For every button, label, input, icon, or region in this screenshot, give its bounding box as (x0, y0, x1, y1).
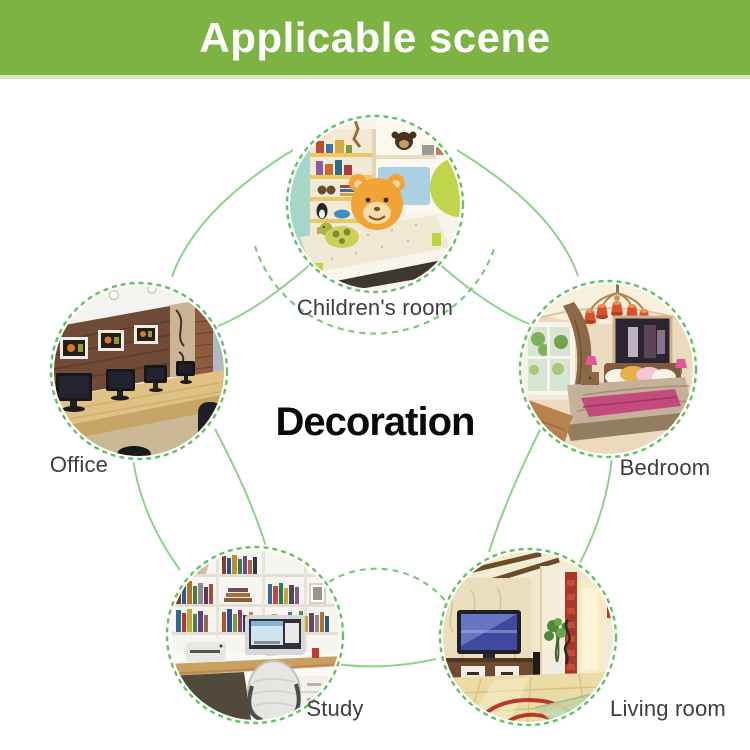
bedroom-illustration (517, 278, 699, 460)
office-illustration (48, 280, 230, 462)
children-room-photo (284, 113, 466, 295)
center-title: Decoration (225, 400, 525, 445)
wall-picture (614, 317, 671, 366)
living-room-label: Living room (592, 696, 744, 722)
study-label: Study (284, 696, 386, 722)
bedroom-label: Bedroom (607, 455, 723, 481)
applicable-scene-infographic: Applicable scene (0, 0, 750, 750)
television (457, 610, 521, 658)
desktop-computer (245, 615, 305, 656)
children-room-illustration (284, 113, 466, 295)
office-photo (48, 280, 230, 462)
children-room-label: Children's room (275, 295, 475, 321)
bedroom-photo (517, 278, 699, 460)
office-label: Office (26, 452, 132, 478)
